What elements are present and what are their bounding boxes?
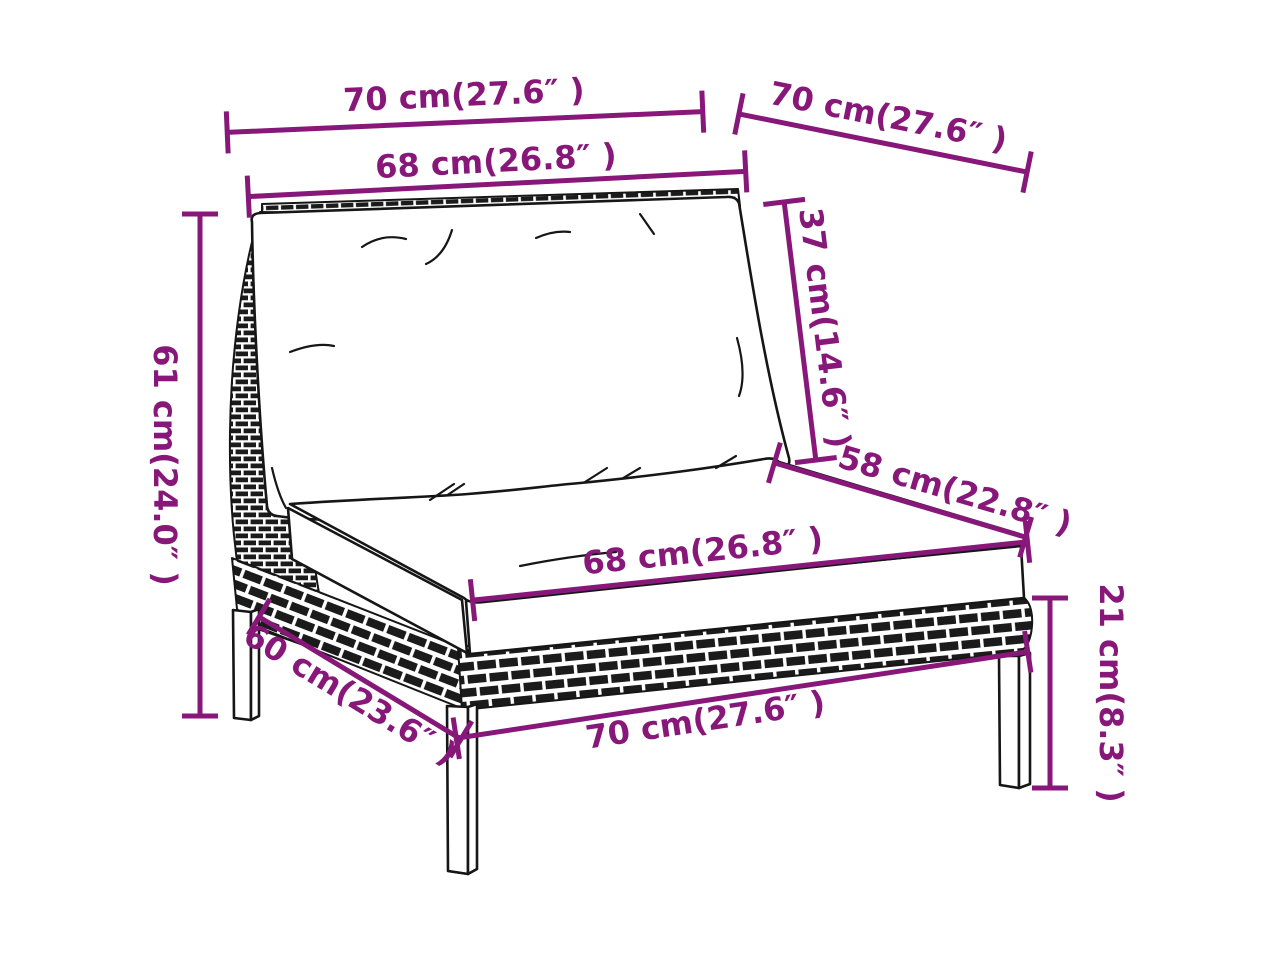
sofa-drawing [230,189,1032,874]
dim-back-height: 61 cm(24.0″ ) [146,214,218,716]
dim-top-depth: 70 cm(27.6″ ) [735,69,1036,193]
dim-back-height-label: 61 cm(24.0″ ) [146,344,184,586]
leg-front-right [999,653,1030,788]
dim-leg-height-label: 21 cm(8.3″ ) [1092,583,1130,802]
diagram-canvas: 70 cm(27.6″ ) 70 cm(27.6″ ) 68 cm(26.8″ … [0,0,1274,955]
dim-top-width-label: 70 cm(27.6″ ) [342,71,585,120]
leg-front-left [447,704,477,874]
dim-top-width: 70 cm(27.6″ ) [225,66,703,154]
dim-leg-height: 21 cm(8.3″ ) [1032,583,1130,802]
product-dimension-diagram: 70 cm(27.6″ ) 70 cm(27.6″ ) 68 cm(26.8″ … [0,0,1274,955]
